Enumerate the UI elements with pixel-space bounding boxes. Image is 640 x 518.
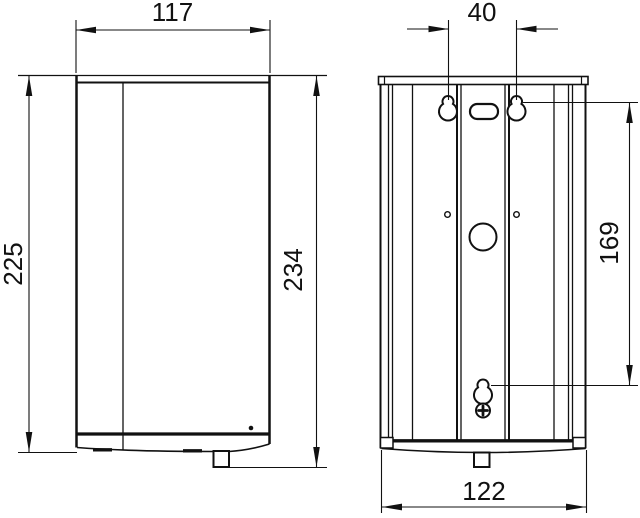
arrowhead-left — [382, 504, 402, 511]
arrowhead-left — [76, 27, 96, 33]
bottom-corner-right — [573, 438, 586, 449]
dim-label-front-width: 117 — [152, 0, 193, 27]
arrowhead-right — [566, 504, 586, 511]
rivet-hole-right — [514, 212, 520, 218]
refill-hole — [470, 224, 497, 251]
back-view — [379, 77, 589, 468]
arrowhead-down — [626, 365, 633, 385]
sensor-dot — [249, 426, 254, 431]
dim-label-back-width: 122 — [462, 476, 505, 506]
arrowhead-down — [26, 432, 33, 452]
arrowhead-right — [429, 26, 449, 32]
technical-drawing-canvas: 117 225 234 — [0, 0, 640, 518]
locking-screw-icon — [476, 404, 490, 418]
dim-label-front-height-total: 234 — [278, 248, 308, 291]
rivet-hole-left — [445, 212, 451, 218]
dim-front-height-body: 225 — [0, 76, 77, 453]
dispenser-spout-front — [214, 451, 230, 467]
dispenser-spout-back — [474, 453, 490, 468]
dim-front-height-total: 234 — [229, 76, 327, 468]
dim-back-hole-vertical: 169 — [491, 103, 638, 386]
dim-label-front-height-body: 225 — [0, 242, 28, 285]
bottom-corner-left — [381, 438, 394, 449]
arrowhead-up — [626, 103, 633, 123]
arrowhead-down — [313, 447, 320, 467]
arrowhead-up — [26, 76, 33, 96]
dim-front-width: 117 — [76, 0, 270, 73]
dim-label-hole-spacing: 40 — [468, 0, 497, 27]
keyhole-slot-bottom — [474, 380, 492, 404]
dim-label-hole-vertical: 169 — [594, 221, 624, 264]
top-cap — [379, 77, 589, 85]
arrowhead-right — [250, 27, 270, 33]
sight-window-slot — [470, 104, 498, 119]
arrowhead-left — [517, 26, 537, 32]
arrowhead-up — [313, 76, 320, 96]
